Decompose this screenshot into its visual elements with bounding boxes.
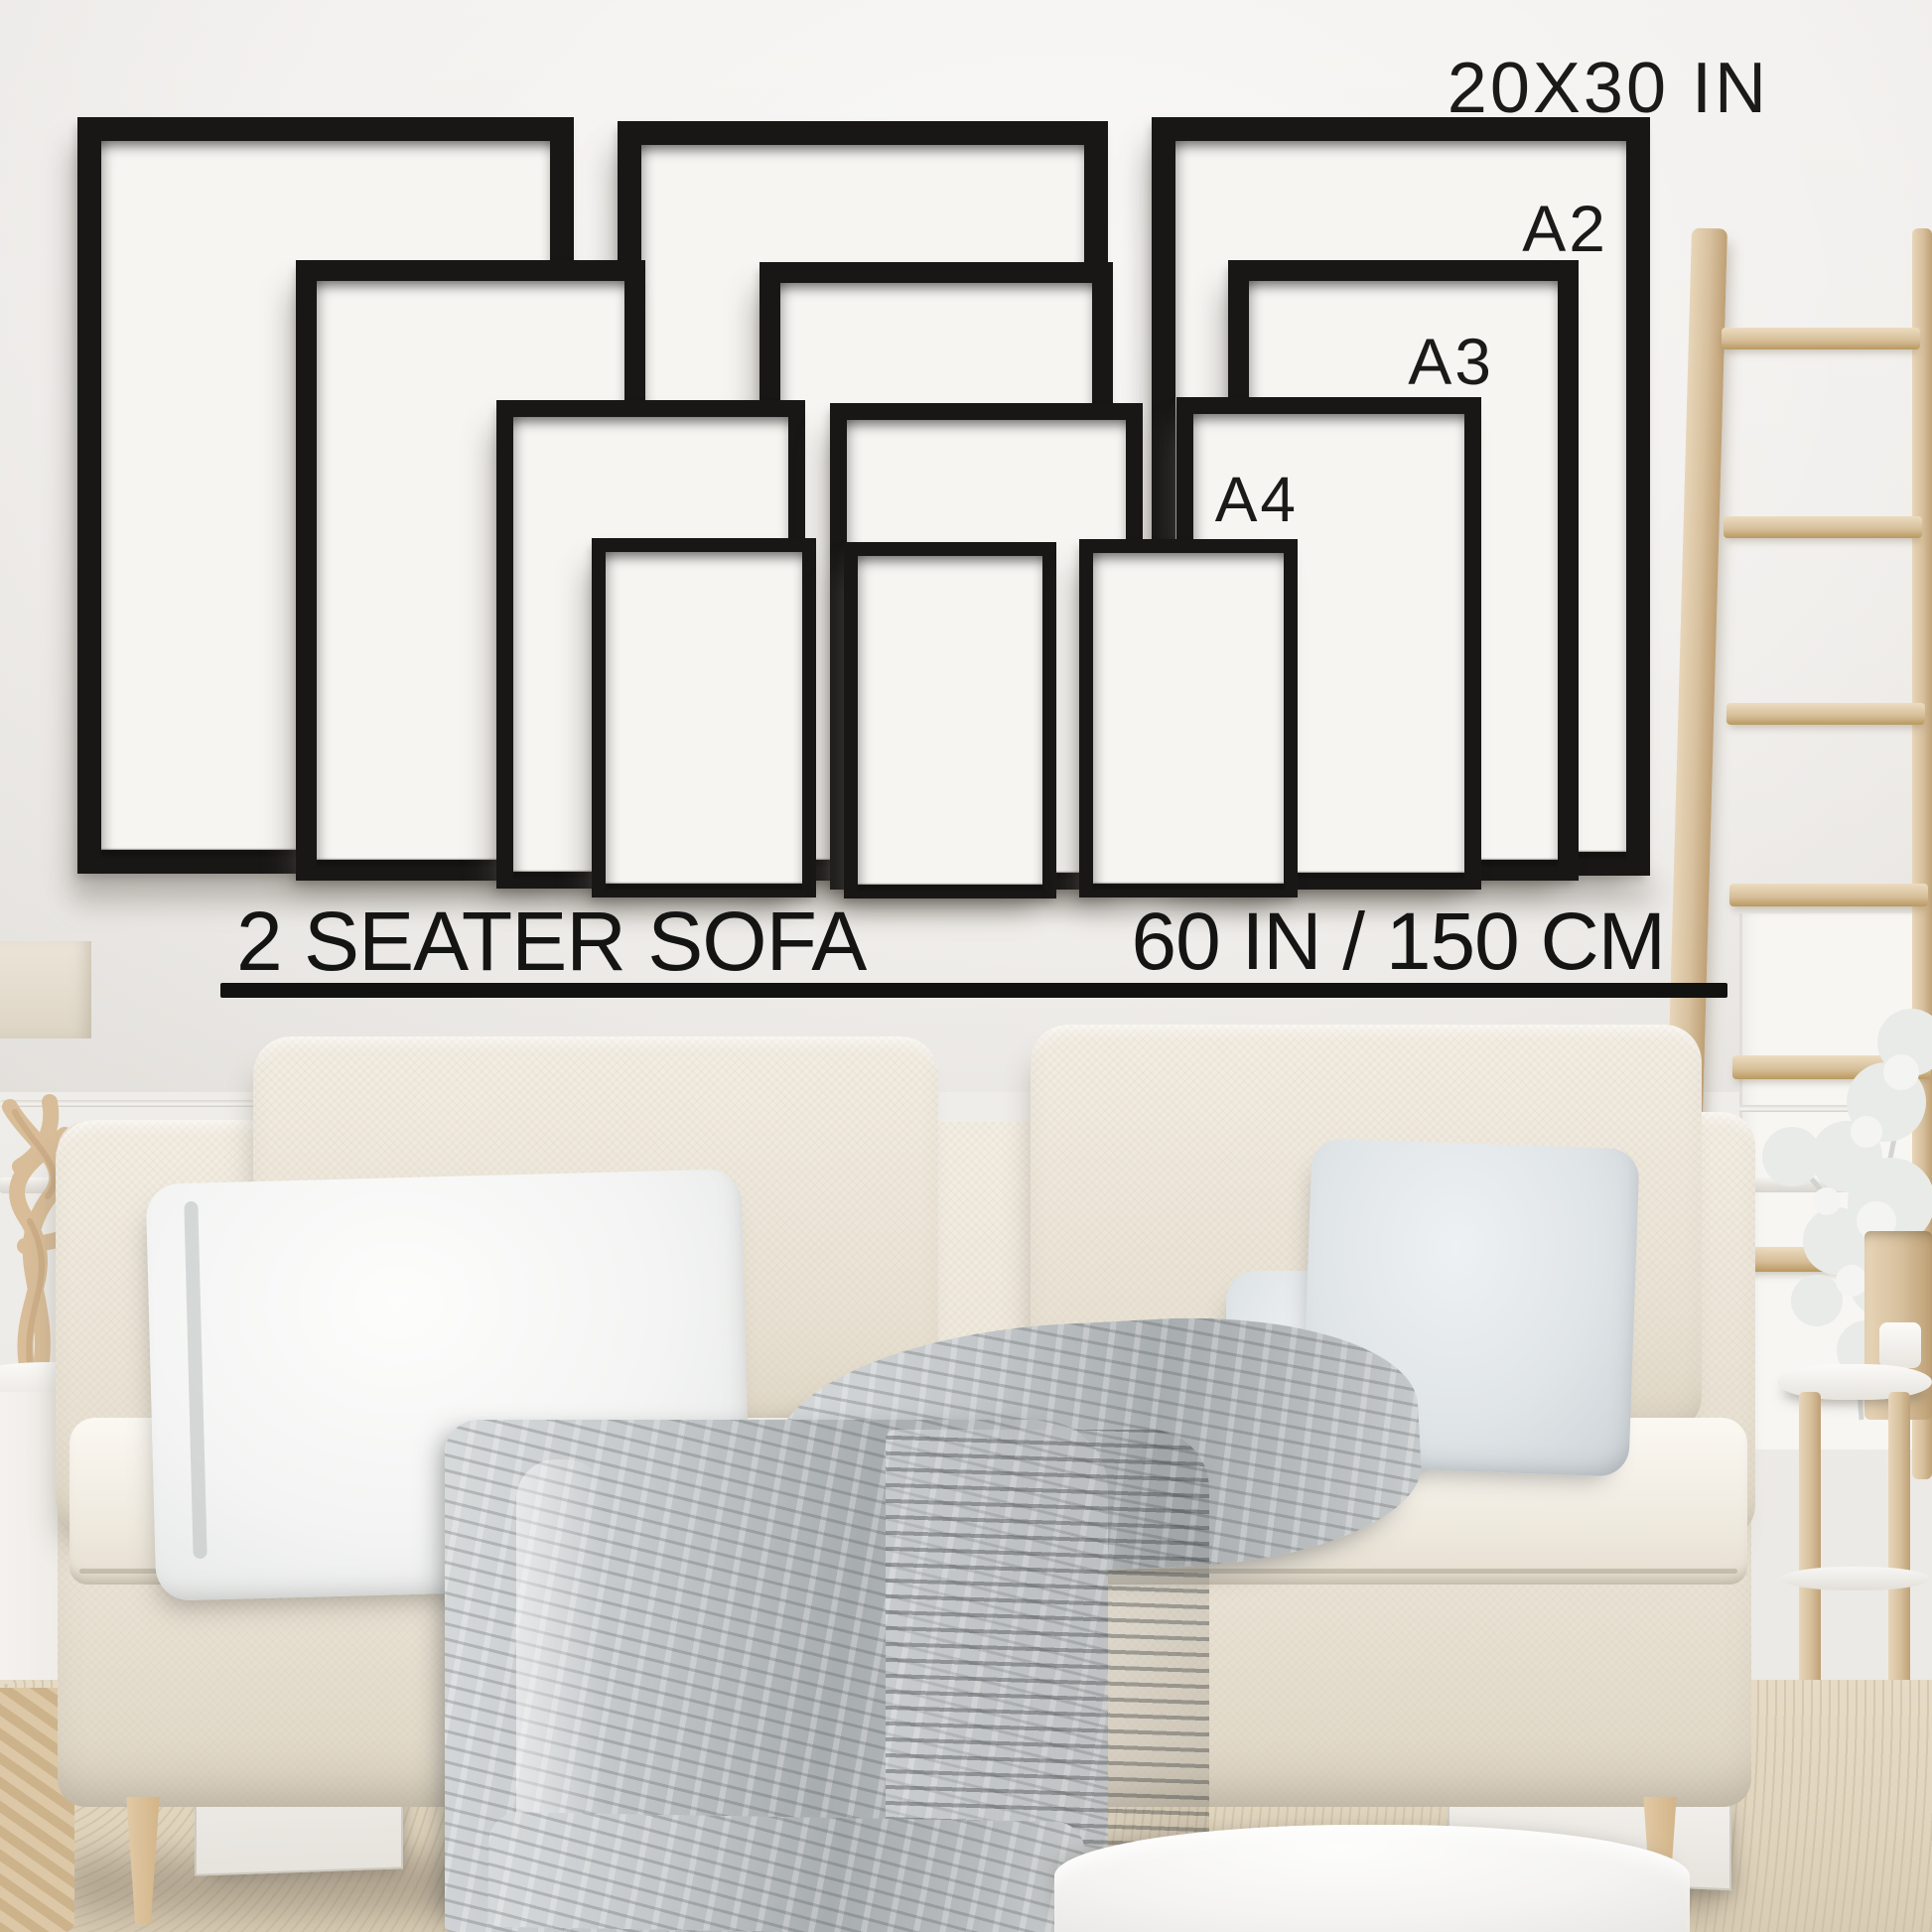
ladder-rung xyxy=(1722,328,1920,349)
sofa-caption: 2 SEATER SOFA xyxy=(236,894,866,990)
frame-a4-middle xyxy=(844,542,1056,898)
label-a2: A2 xyxy=(1522,191,1608,266)
sofa-leg xyxy=(117,1797,169,1924)
candle xyxy=(1879,1322,1921,1368)
ladder-rung xyxy=(1729,884,1928,906)
floor-pouf xyxy=(1054,1825,1690,1932)
sofa-width-line xyxy=(220,983,1727,998)
size-guide-image: 20X30 IN A2 A3 A4 2 SEATER SOFA 60 IN / … xyxy=(0,0,1932,1932)
pillow-white-left xyxy=(146,1169,753,1601)
label-a3: A3 xyxy=(1408,324,1494,399)
label-a4: A4 xyxy=(1215,463,1299,536)
frame-a4-right xyxy=(1079,539,1298,897)
frame-a4-left xyxy=(592,538,816,897)
ladder-rung xyxy=(1726,703,1925,725)
label-20x30: 20X30 IN xyxy=(1448,48,1769,129)
sofa-width-caption: 60 IN / 150 CM xyxy=(1132,896,1665,989)
pillow-blue-gray-right xyxy=(1301,1138,1639,1476)
ladder-rung xyxy=(1724,516,1922,538)
